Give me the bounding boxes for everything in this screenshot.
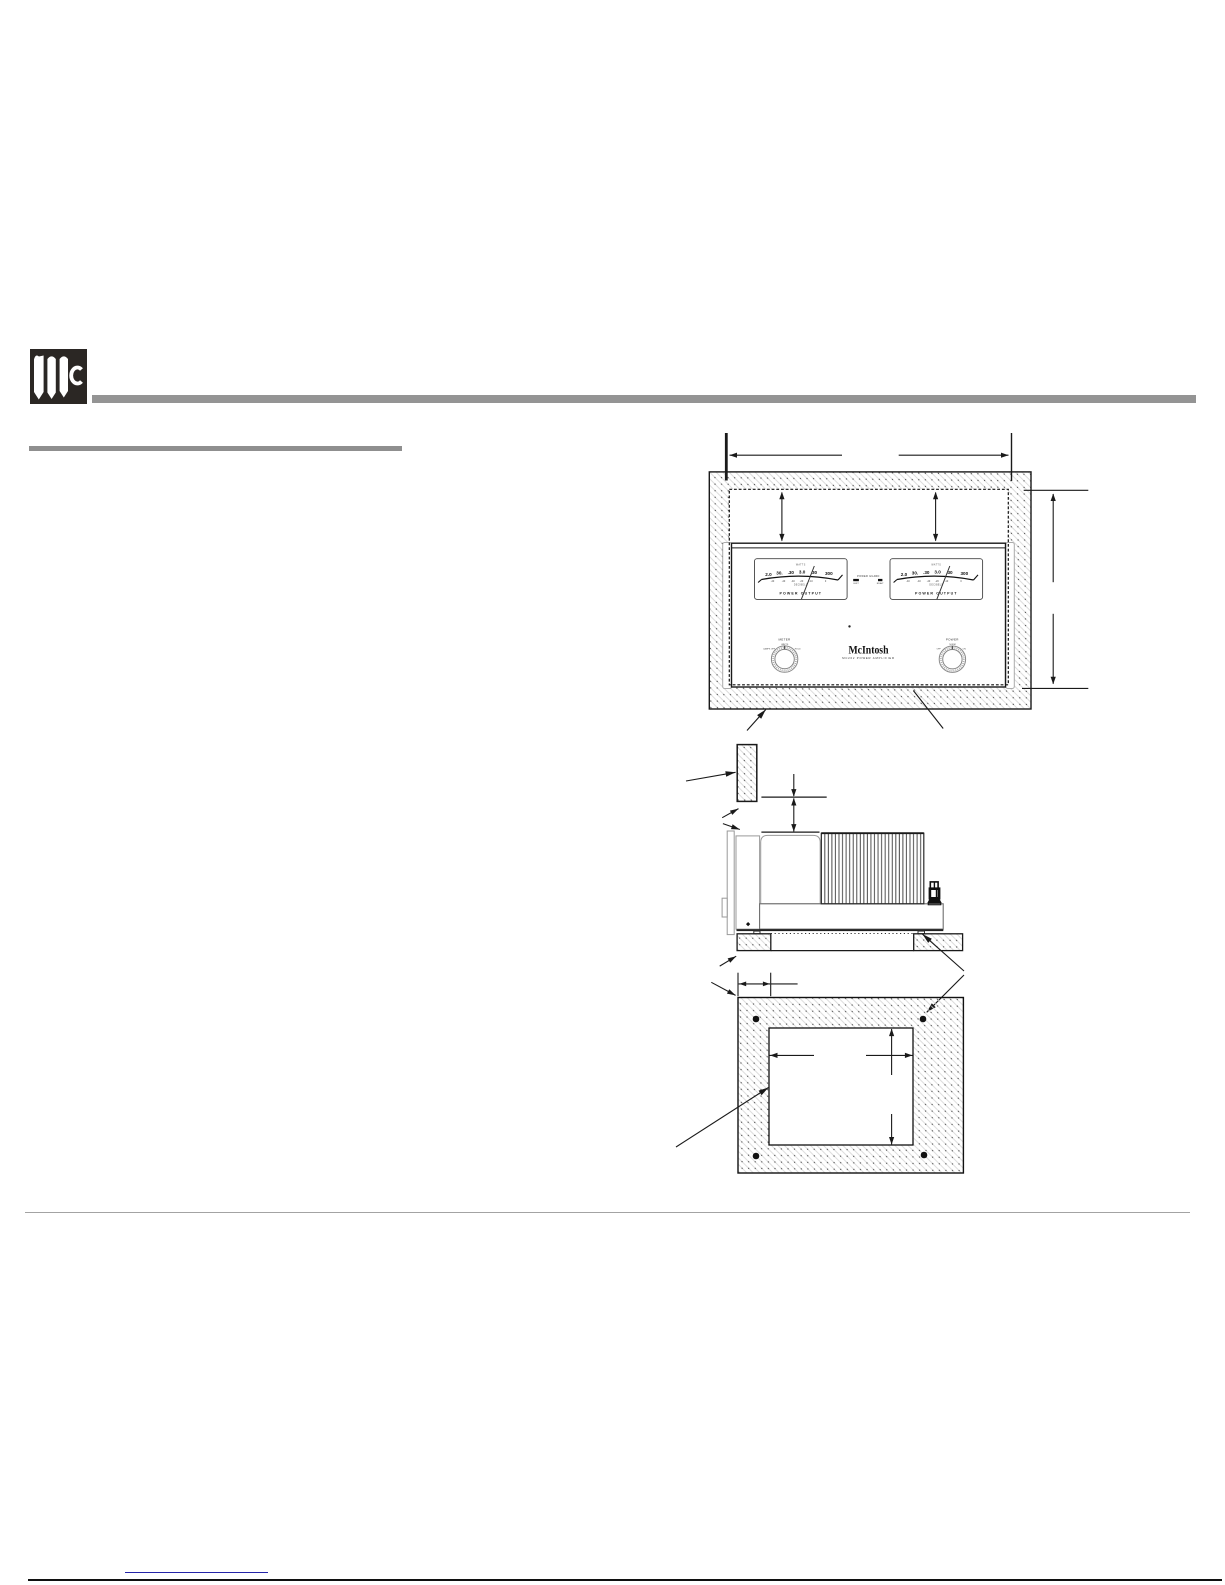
svg-text:OFF: OFF <box>937 648 942 650</box>
svg-text:WATTS: WATTS <box>781 643 789 646</box>
svg-text:HOLD: HOLD <box>795 648 801 650</box>
svg-text:MC202 POWER AMPLIFIER: MC202 POWER AMPLIFIER <box>842 656 895 660</box>
svg-text:METER: METER <box>779 637 792 641</box>
svg-text:POWER: POWER <box>946 637 959 641</box>
svg-text:McIntosh: McIntosh <box>849 645 890 657</box>
svg-text:LEFT: LEFT <box>853 583 859 585</box>
svg-text:RIGHT: RIGHT <box>877 583 884 585</box>
svg-text:POWER GUARD: POWER GUARD <box>857 575 879 578</box>
svg-text:NORM: NORM <box>949 644 956 646</box>
svg-text:LAMPS OFF: LAMPS OFF <box>763 647 776 650</box>
svg-text:ON: ON <box>963 648 967 650</box>
